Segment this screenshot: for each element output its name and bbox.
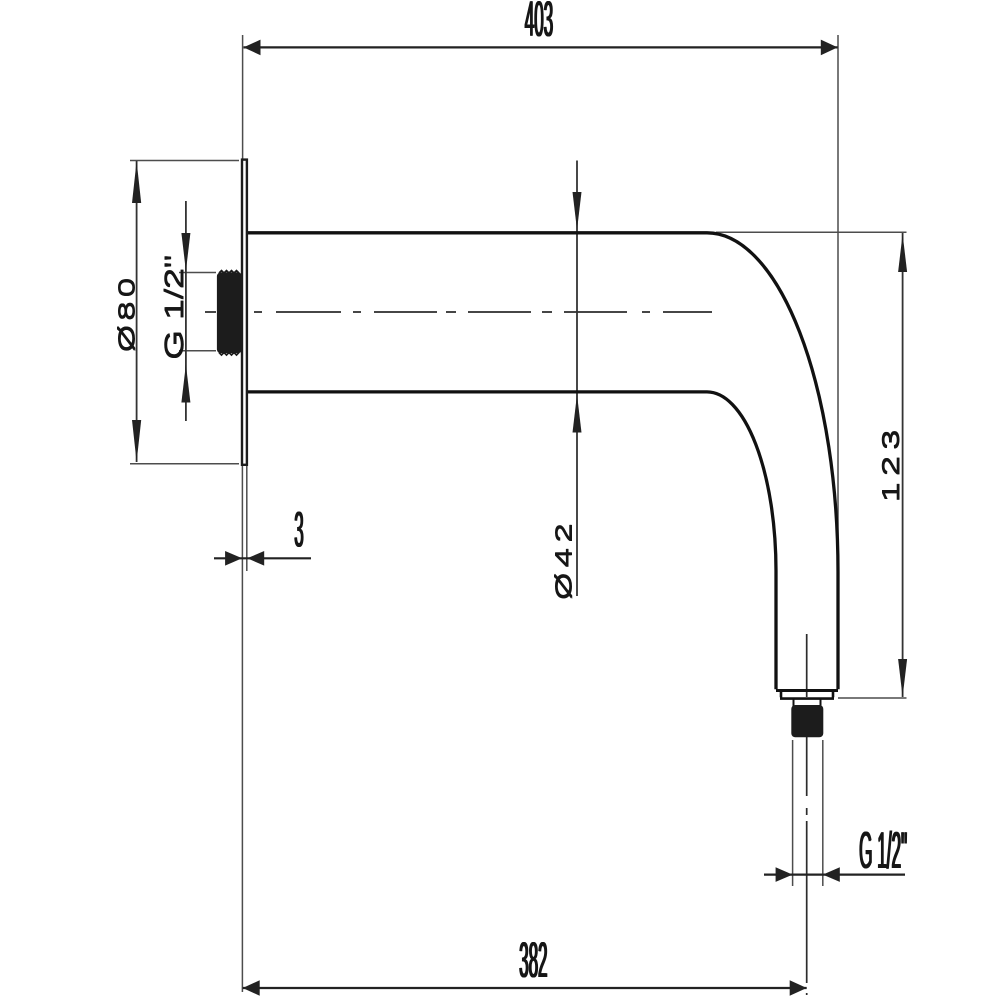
svg-text:Ø42: Ø42 xyxy=(552,518,578,600)
svg-text:403: 403 xyxy=(525,0,553,47)
svg-text:G 1/2": G 1/2" xyxy=(161,255,190,360)
svg-text:123: 123 xyxy=(878,424,905,503)
svg-text:G 1/2": G 1/2" xyxy=(860,822,908,880)
svg-text:Ø80: Ø80 xyxy=(115,274,141,352)
svg-text:3: 3 xyxy=(295,501,304,557)
svg-text:382: 382 xyxy=(520,931,548,987)
